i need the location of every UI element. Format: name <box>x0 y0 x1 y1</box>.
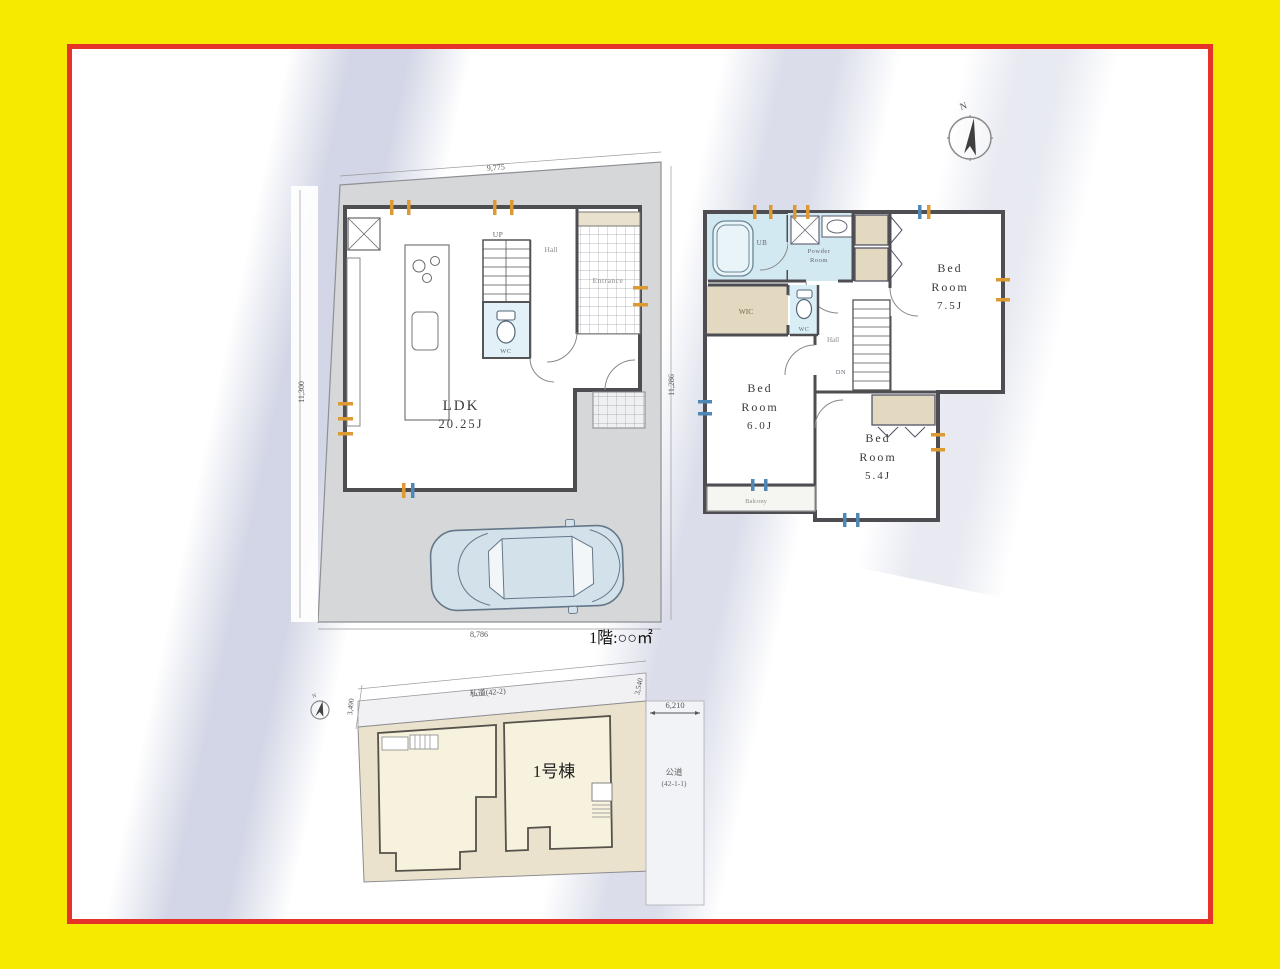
ub-label: UB <box>757 239 768 247</box>
toilet2-tank-icon <box>797 290 812 298</box>
dn-label: DN <box>836 369 846 376</box>
stairs-up <box>483 240 530 302</box>
bed3-label-1: Bed <box>865 431 890 445</box>
toilet2-icon <box>797 300 812 319</box>
entrance-step <box>577 212 640 226</box>
dim-left: 11,300 <box>297 381 306 403</box>
building-no1: 1号棟 <box>504 716 612 851</box>
sink-icon <box>412 312 438 350</box>
dim-strip <box>291 186 318 622</box>
floor2-plan: UB Powder Room WIC WC Hall DN Balcony Be… <box>698 190 1018 540</box>
bathtub-icon <box>713 221 753 276</box>
bed2-label-2: Room <box>741 400 778 414</box>
dim-6210-label: 6,210 <box>665 700 684 710</box>
site-compass-north: N <box>312 693 318 700</box>
wc-label: WC <box>500 348 511 355</box>
powder-label-1: Powder <box>808 248 831 255</box>
building-no1-label: 1号棟 <box>533 762 576 781</box>
public-road-label-2: (42-1-1) <box>662 779 687 788</box>
toilet-icon <box>497 321 515 343</box>
wc2-label: WC <box>799 327 810 333</box>
floor1-area-label: 1階:○○㎡ <box>589 629 653 647</box>
dim-3490-label: 3,490 <box>345 698 356 716</box>
ldk-label: LDK <box>443 398 480 414</box>
balcony-label: Balcony <box>745 498 767 505</box>
toilet-tank-icon <box>497 311 515 320</box>
wic-label: WIC <box>739 307 754 316</box>
site-compass: N <box>311 693 329 719</box>
site-compass-needle-icon <box>315 701 326 718</box>
bed1-size: 7.5J <box>937 300 963 312</box>
ldk-size-label: 20.25J <box>439 417 484 431</box>
bed2-size: 6.0J <box>747 420 773 432</box>
entrance-label: Entrance <box>593 276 624 285</box>
bed3-label-2: Room <box>859 450 896 464</box>
dim-top: 9,775 <box>487 162 506 172</box>
counter <box>347 258 360 426</box>
bed2-label-1: Bed <box>747 381 772 395</box>
up-label: UP <box>493 230 504 239</box>
porch-tiles <box>593 392 645 428</box>
bed1-label-1: Bed <box>937 261 962 275</box>
hall-label: Hall <box>545 245 558 254</box>
public-road <box>646 701 704 905</box>
dim-bottom: 8,786 <box>470 630 488 639</box>
site-plan: N 1号棟 <box>298 655 708 915</box>
compass: N <box>930 88 1010 178</box>
public-road-label-1: 公道 <box>665 767 683 777</box>
building-left-steps <box>410 735 438 749</box>
compass-north-label: N <box>959 101 969 113</box>
bathroom-ub <box>707 214 788 281</box>
building-no1-porch <box>592 783 612 801</box>
powder-label-2: Room <box>810 257 828 264</box>
bed3-size: 5.4J <box>865 470 891 482</box>
plan-sheet: UP Hall Entrance WC LDK 20.25J 9,775 11,… <box>67 44 1213 924</box>
bed1-label-2: Room <box>931 280 968 294</box>
stairs-down <box>853 300 890 390</box>
hall2-label: Hall <box>827 336 839 344</box>
car <box>429 518 624 619</box>
floor1-plan: UP Hall Entrance WC LDK 20.25J 9,775 11,… <box>283 90 683 655</box>
dim-right: 11,286 <box>667 374 676 396</box>
window-marks-blue <box>411 483 415 498</box>
